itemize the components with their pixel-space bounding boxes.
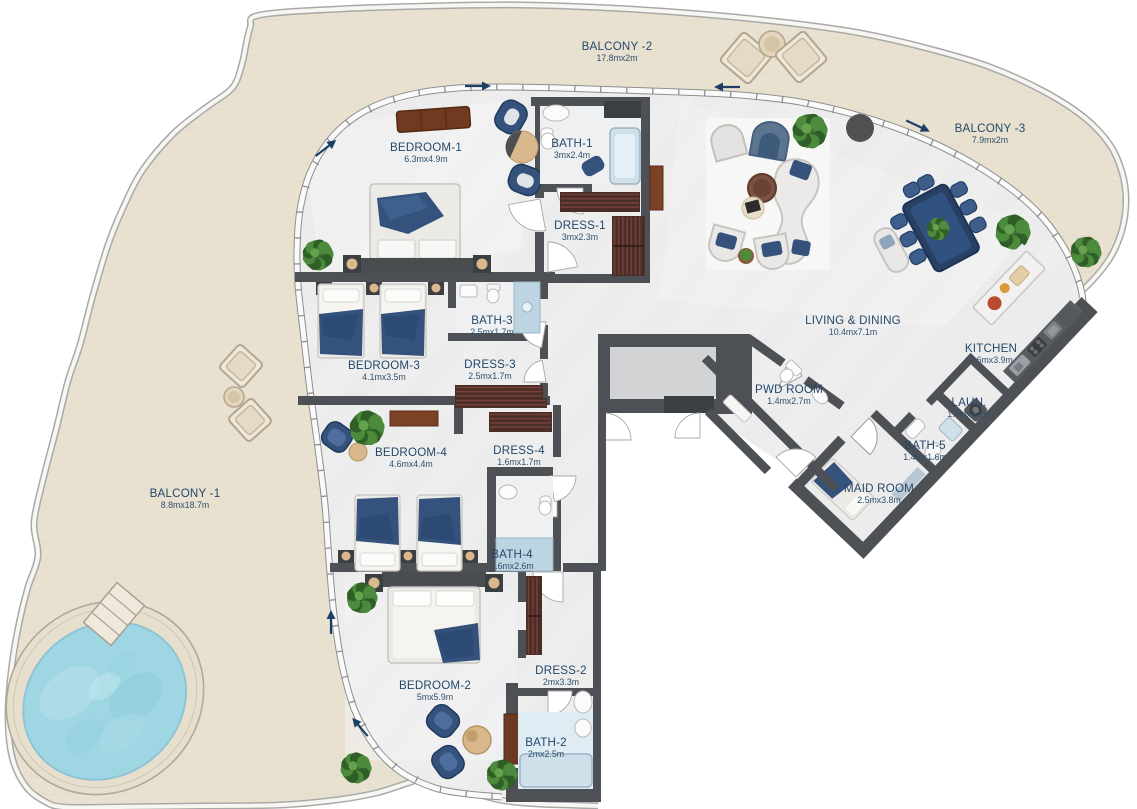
svg-text:17.8mx2m: 17.8mx2m (596, 53, 637, 63)
svg-text:BEDROOM-1: BEDROOM-1 (390, 141, 462, 154)
svg-text:BATH-1: BATH-1 (551, 137, 593, 150)
svg-text:5mx5.9m: 5mx5.9m (417, 692, 453, 702)
svg-text:BATH-3: BATH-3 (471, 314, 513, 327)
svg-text:DRESS-1: DRESS-1 (554, 219, 606, 232)
svg-text:DRESS-3: DRESS-3 (464, 358, 516, 371)
svg-text:DRESS-4: DRESS-4 (493, 444, 545, 457)
svg-text:1.4mx1.2m: 1.4mx1.2m (947, 409, 991, 419)
svg-text:1.6mx1.7m: 1.6mx1.7m (497, 457, 541, 467)
svg-text:BATH-2: BATH-2 (525, 736, 567, 749)
svg-text:3mx2.3m: 3mx2.3m (562, 232, 598, 242)
svg-text:BEDROOM-2: BEDROOM-2 (399, 679, 471, 692)
svg-text:7.9mx2m: 7.9mx2m (972, 135, 1008, 145)
svg-text:LAUN.: LAUN. (951, 396, 986, 409)
svg-text:1.4mx2.7m: 1.4mx2.7m (767, 396, 811, 406)
svg-text:DRESS-2: DRESS-2 (535, 664, 587, 677)
svg-text:3mx2.4m: 3mx2.4m (554, 150, 590, 160)
svg-text:BATH-4: BATH-4 (491, 548, 533, 561)
svg-text:2mx2.5m: 2mx2.5m (528, 749, 564, 759)
svg-text:BALCONY -2: BALCONY -2 (582, 40, 653, 53)
svg-text:KITCHEN: KITCHEN (965, 342, 1017, 355)
svg-text:4.1mx3.5m: 4.1mx3.5m (362, 372, 406, 382)
svg-text:4.6mx4.4m: 4.6mx4.4m (389, 459, 433, 469)
svg-text:BEDROOM-3: BEDROOM-3 (348, 359, 420, 372)
svg-text:BEDROOM-4: BEDROOM-4 (375, 446, 447, 459)
svg-text:PWD ROOM: PWD ROOM (755, 383, 823, 396)
svg-text:MAID ROOM: MAID ROOM (844, 482, 914, 495)
svg-text:2.5mx1.7m: 2.5mx1.7m (468, 371, 512, 381)
svg-text:BALCONY -3: BALCONY -3 (955, 122, 1026, 135)
svg-text:BATH-5: BATH-5 (904, 439, 946, 452)
svg-text:6.3mx4.9m: 6.3mx4.9m (404, 154, 448, 164)
svg-text:2.5mx1.7m: 2.5mx1.7m (470, 327, 514, 337)
svg-text:2.6mx3.9m: 2.6mx3.9m (969, 355, 1013, 365)
svg-text:10.4mx7.1m: 10.4mx7.1m (829, 327, 877, 337)
svg-text:BALCONY -1: BALCONY -1 (150, 487, 221, 500)
svg-text:2.5mx3.8m: 2.5mx3.8m (857, 495, 901, 505)
svg-text:1.4mx1.6m: 1.4mx1.6m (903, 452, 947, 462)
svg-text:LIVING & DINING: LIVING & DINING (805, 314, 901, 327)
svg-text:2mx3.3m: 2mx3.3m (543, 677, 579, 687)
svg-text:1.6mx2.6m: 1.6mx2.6m (490, 561, 534, 571)
svg-text:8.8mx18.7m: 8.8mx18.7m (161, 500, 209, 510)
